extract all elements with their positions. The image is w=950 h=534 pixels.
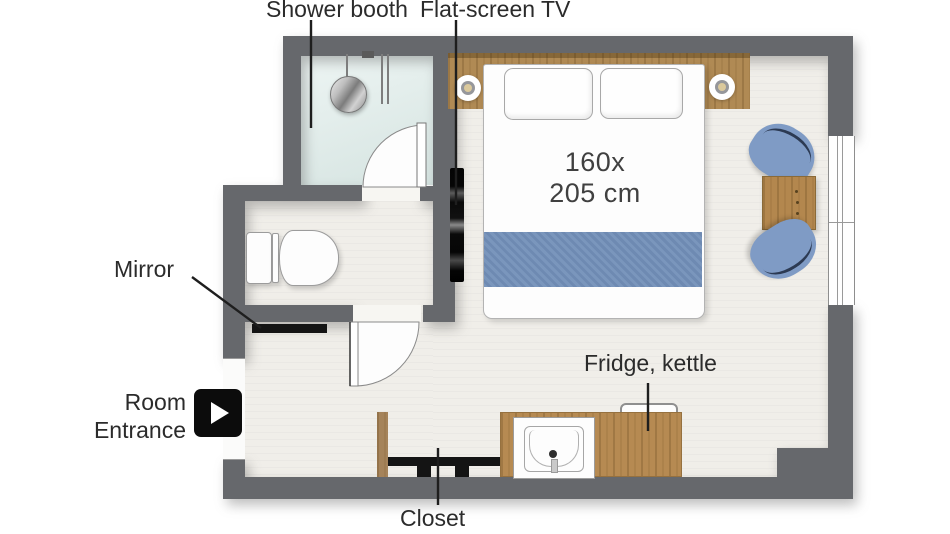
label-closet: Closet: [400, 504, 465, 532]
window-frame-line: [842, 136, 843, 305]
tv-flat-screen: [450, 168, 464, 282]
bathroom-door-opening: [362, 185, 420, 201]
window-frame-line: [837, 136, 838, 305]
wall-left-mid: [223, 185, 245, 358]
play-right-icon: [211, 402, 229, 424]
floor-plan: 160x 205 cm: [0, 0, 950, 534]
label-shower-booth: Shower booth: [266, 0, 408, 23]
closet-bracket: [455, 466, 469, 477]
bed-size-line2: 205 cm: [515, 178, 675, 209]
shower-head-icon: [330, 76, 367, 113]
closet-rail: [388, 457, 500, 466]
sink-unit: [513, 417, 595, 479]
mirror: [252, 324, 327, 333]
label-room-entrance: Room Entrance: [60, 388, 186, 444]
toilet-bowl: [279, 230, 339, 286]
closet-panel-left: [377, 412, 388, 477]
label-room-entrance-line2: Entrance: [60, 416, 186, 444]
wall-divider-foot: [423, 305, 433, 322]
window: [828, 136, 855, 305]
shower-pipe: [381, 54, 383, 104]
entrance-arrow-icon: [194, 389, 242, 437]
bed-size-line1: 160x: [515, 147, 675, 178]
label-flat-screen-tv: Flat-screen TV: [420, 0, 570, 23]
wall-left-lower: [223, 458, 245, 499]
wall-bathroom-left: [283, 36, 301, 201]
label-room-entrance-line1: Room: [60, 388, 186, 416]
wall-right-upper: [828, 36, 853, 136]
table-detail: [795, 190, 798, 193]
bed-blanket: [484, 232, 702, 287]
faucet-stem: [551, 459, 558, 473]
sconce-bulb: [718, 83, 726, 91]
wall-bottom: [223, 477, 853, 499]
shower-control: [362, 51, 374, 58]
label-fridge-kettle: Fridge, kettle: [584, 349, 717, 377]
shower-pipe: [387, 54, 389, 104]
pillow-left: [504, 68, 593, 120]
table-detail: [796, 201, 799, 204]
wall-toilet-bottom: [245, 305, 353, 322]
window-divider: [829, 222, 854, 223]
bed-size-label: 160x 205 cm: [515, 147, 675, 209]
faucet-icon: [549, 450, 557, 458]
closet-bracket: [417, 466, 431, 477]
toilet-lid: [272, 233, 279, 283]
pillow-right: [600, 68, 683, 119]
toilet-door-opening: [353, 305, 421, 322]
label-mirror: Mirror: [114, 255, 174, 283]
table-detail: [796, 212, 799, 215]
sconce-bulb: [464, 84, 472, 92]
toilet-tank: [246, 232, 272, 284]
